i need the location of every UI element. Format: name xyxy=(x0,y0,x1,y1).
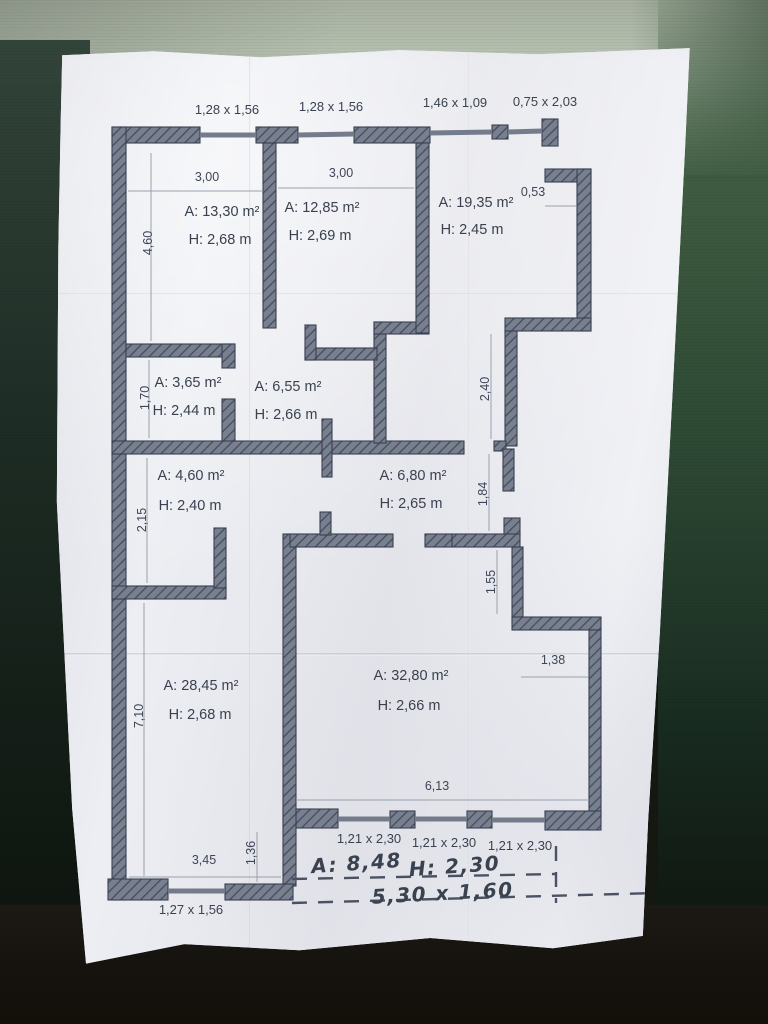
dim-6-13-label: 6,13 xyxy=(425,779,449,793)
dim-2-15-label: 2,15 xyxy=(135,508,149,532)
room-32-80-height-label: H: 2,66 m xyxy=(378,698,441,714)
handwritten-area-label: A: 8,48 xyxy=(308,848,402,878)
dim-3-45-label: 3,45 xyxy=(192,853,216,867)
room-12-85-height-label: H: 2,69 m xyxy=(289,228,352,244)
room-13-30-area-label: A: 13,30 m² xyxy=(185,204,260,220)
room-19-35-area-label: A: 19,35 m² xyxy=(439,195,514,211)
room-32-80-area-label: A: 32,80 m² xyxy=(374,668,449,684)
window-top-3-label: 1,46 x 1,09 xyxy=(423,95,487,110)
handwritten-size-label: 5,30 x 1,60 xyxy=(371,877,514,908)
dim-1-70-label: 1,70 xyxy=(138,386,152,410)
room-28-45-height-label: H: 2,68 m xyxy=(169,707,232,723)
window-bottom-1-label: 1,21 x 2,30 xyxy=(337,831,401,846)
window-bottom-2-label: 1,21 x 2,30 xyxy=(412,835,476,850)
room-3-65-area-label: A: 3,65 m² xyxy=(155,375,222,391)
room-6-80-height-label: H: 2,65 m xyxy=(380,496,443,512)
dim-1-38-label: 1,38 xyxy=(541,653,565,667)
dim-4-60-label: 4,60 xyxy=(141,231,155,255)
window-bottom-4-label: 1,27 x 1,56 xyxy=(159,902,223,917)
dim-1-55-label: 1,55 xyxy=(484,570,498,594)
room-6-55-height-label: H: 2,66 m xyxy=(255,407,318,423)
room-4-60-height-label: H: 2,40 m xyxy=(159,498,222,514)
room-28-45-area-label: A: 28,45 m² xyxy=(164,678,239,694)
dim-3-00-b-label: 3,00 xyxy=(329,166,353,180)
window-top-4-label: 0,75 x 2,03 xyxy=(513,94,577,109)
handwritten-height-label: H: 2,30 xyxy=(408,851,501,881)
dim-2-40-label: 2,40 xyxy=(478,377,492,401)
dim-3-00-a-label: 3,00 xyxy=(195,170,219,184)
dim-1-84-label: 1,84 xyxy=(476,482,490,506)
room-19-35-height-label: H: 2,45 m xyxy=(441,222,504,238)
room-4-60-area-label: A: 4,60 m² xyxy=(158,468,225,484)
photo-of-floor-plan: 1,28 x 1,561,28 x 1,561,46 x 1,090,75 x … xyxy=(0,0,768,1024)
window-top-2-label: 1,28 x 1,56 xyxy=(299,99,363,114)
labels-layer: 1,28 x 1,561,28 x 1,561,46 x 1,090,75 x … xyxy=(132,94,577,917)
dim-7-10-label: 7,10 xyxy=(132,704,146,728)
dim-0-53-label: 0,53 xyxy=(521,185,545,199)
room-3-65-height-label: H: 2,44 m xyxy=(153,403,216,419)
room-6-55-area-label: A: 6,55 m² xyxy=(255,379,322,395)
window-top-1-label: 1,28 x 1,56 xyxy=(195,102,259,117)
room-12-85-area-label: A: 12,85 m² xyxy=(285,200,360,216)
room-13-30-height-label: H: 2,68 m xyxy=(189,232,252,248)
dim-1-36-label: 1,36 xyxy=(244,841,258,865)
room-6-80-area-label: A: 6,80 m² xyxy=(380,468,447,484)
floor-plan-drawing: 1,28 x 1,561,28 x 1,561,46 x 1,090,75 x … xyxy=(0,0,768,1024)
